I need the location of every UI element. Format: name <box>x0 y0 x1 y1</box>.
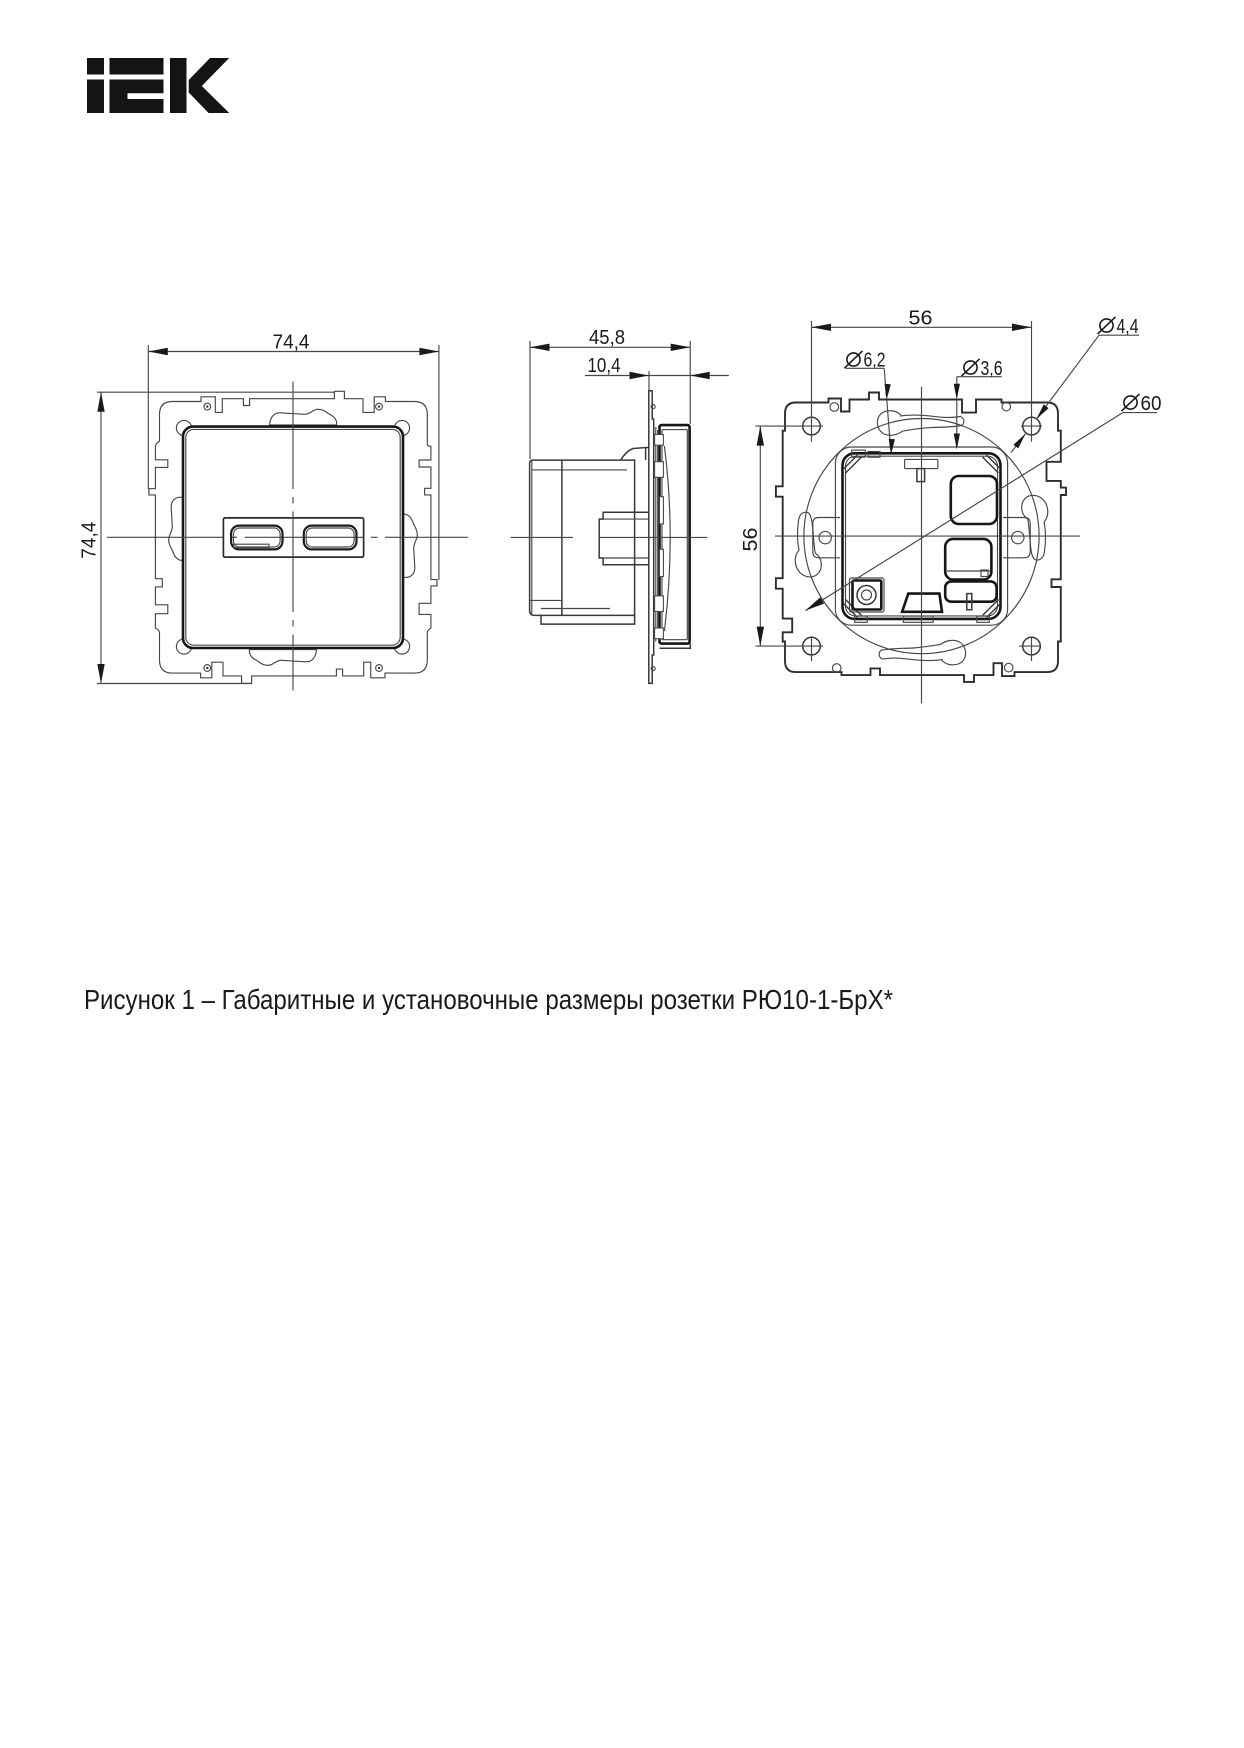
svg-text:60: 60 <box>1141 393 1162 415</box>
svg-text:56: 56 <box>740 528 762 552</box>
svg-text:4,4: 4,4 <box>1117 316 1139 338</box>
svg-text:10,4: 10,4 <box>588 355 621 377</box>
svg-text:45,8: 45,8 <box>589 327 625 349</box>
svg-text:74,4: 74,4 <box>78 522 100 559</box>
svg-text:56: 56 <box>909 308 933 330</box>
svg-text:74,4: 74,4 <box>273 332 310 354</box>
svg-text:Рисунок 1 – Габаритные и устан: Рисунок 1 – Габаритные и установочные ра… <box>84 984 893 1015</box>
